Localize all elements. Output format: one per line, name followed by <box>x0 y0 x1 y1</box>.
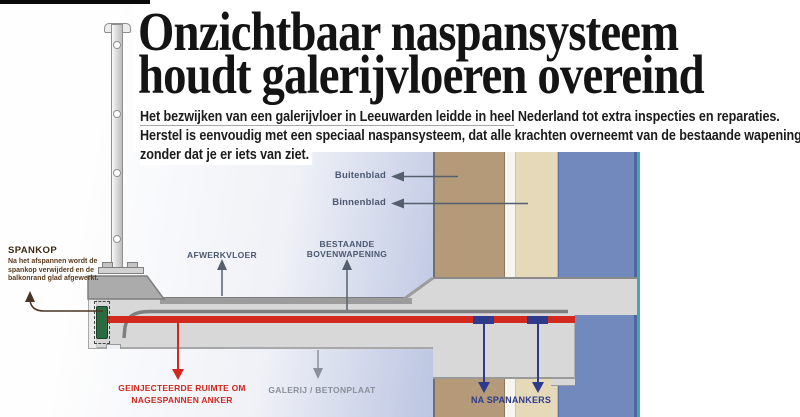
infographic: Onzichtbaar naspansysteem houdt galerijv… <box>0 0 800 417</box>
headline: Onzichtbaar naspansysteem houdt galerijv… <box>138 10 800 96</box>
railing-rivet <box>113 235 121 243</box>
buitenblad-label: Buitenblad <box>286 171 386 181</box>
bearing-nib <box>551 379 575 386</box>
naspanankers-label: NA SPANANKERS <box>441 395 581 405</box>
intro-paragraph: Het bezwijken van een galerijvloer in Le… <box>140 108 800 165</box>
spankop-desc-3: balkonrand glad afgewerkt. <box>8 275 128 284</box>
railing-rivet <box>113 110 121 118</box>
span-anchor-2 <box>527 316 548 324</box>
bovenwapening-label: BESTAANDE BOVENWAPENING <box>277 239 417 259</box>
intro-line1-underlined: Het bezwijken van een galerijvloer in Le… <box>140 109 514 126</box>
intro-line3: zonder dat je er iets van ziet. <box>140 146 313 165</box>
geinjecteerde-line2: NAGESPANNEN ANKER <box>92 394 272 406</box>
railing-rivet <box>113 41 121 49</box>
spankop-anchor <box>96 306 108 339</box>
railing-rivet <box>113 169 121 177</box>
bovenwapening-line2: BOVENWAPENING <box>277 249 417 259</box>
drip-notch <box>106 344 121 349</box>
headline-line-2: houdt galerijvloeren overeind <box>138 53 800 96</box>
tension-cable <box>103 316 575 323</box>
diagram-right-border <box>637 152 640 417</box>
railing-post <box>111 24 123 268</box>
top-border-rule <box>0 0 150 4</box>
galerij-label: GALERIJ / BETONPLAAT <box>242 385 402 395</box>
interior-floor-slab <box>433 277 637 315</box>
bovenwapening-line1: BESTAANDE <box>277 239 417 249</box>
spankop-label: SPANKOP Na het afspannen wordt de spanko… <box>8 246 128 284</box>
intro-line2: Herstel is eenvoudig met een speciaal na… <box>140 127 800 146</box>
afwerkvloer-label: AFWERKVLOER <box>152 250 292 260</box>
span-anchor-1 <box>473 316 494 324</box>
spankop-desc-1: Na het afspannen wordt de <box>8 258 128 267</box>
spankop-title: SPANKOP <box>8 246 128 256</box>
screed-layer <box>160 297 412 304</box>
spankop-desc-2: spankop verwijderd en de <box>8 267 128 276</box>
gallery-slab <box>88 297 433 349</box>
binnenblad-label: Binnenblad <box>286 198 386 208</box>
intro-line1-rest: Nederland tot extra inspecties en repara… <box>514 109 779 125</box>
wall-bearing-block <box>433 315 575 379</box>
